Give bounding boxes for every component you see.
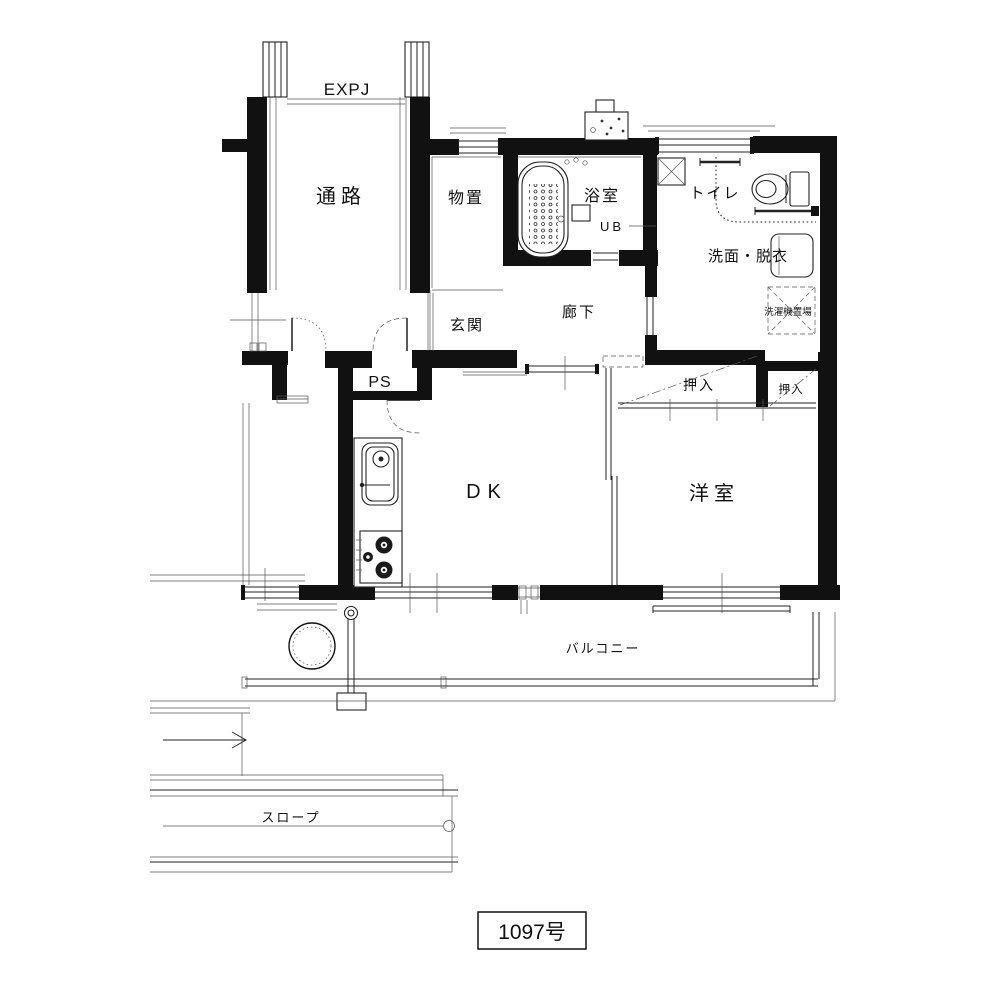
room-label-closet-side: 押入 [779,382,804,396]
balcony-and-slope [150,612,835,872]
drain-pipe-icon [337,607,366,711]
room-label-toilet: トイレ [689,185,740,202]
expj-label: EXPJ [324,80,371,99]
site-label-slope: スロープ [261,810,320,825]
floor-plan: EXPJ 通路 物置 浴室 UB トイレ 洗面・脱衣 洗濯機置場 玄関 廊下 P… [0,0,1000,1000]
room-label-washroom: 洗面・脱衣 [708,248,788,265]
dk-door-swing [387,400,420,433]
bathtub-icon [518,158,590,257]
room-label-pipe-space: PS [368,374,391,391]
room-label-bathroom: 浴室 [584,187,620,205]
room-label-hallway: 廊下 [562,304,596,321]
room-label-closet-main: 押入 [683,377,715,393]
room-label-unit-bath: UB [600,219,624,234]
room-label-entrance: 玄関 [450,317,484,334]
room-label-washer-place: 洗濯機置場 [764,306,812,318]
entrance-door-swing [373,318,407,351]
unit-number-box: 1097号 [478,912,586,949]
water-heater-icon [585,100,628,140]
kitchen-counter-icon [354,438,402,587]
duct-shaft-icon [658,158,685,185]
room-label-passage: 通路 [316,185,366,208]
floor-plan-canvas: EXPJ 通路 物置 浴室 UB トイレ 洗面・脱衣 洗濯機置場 玄関 廊下 P… [0,0,1000,1000]
room-label-dining-kitchen: DK [466,481,508,503]
passage-door-swing [292,318,326,351]
planter-circle-icon [289,623,335,669]
room-label-balcony: バルコニー [566,641,641,656]
room-label-western-room: 洋室 [689,482,739,505]
unit-number-label: 1097号 [498,921,566,944]
room-label-storage: 物置 [448,189,484,207]
